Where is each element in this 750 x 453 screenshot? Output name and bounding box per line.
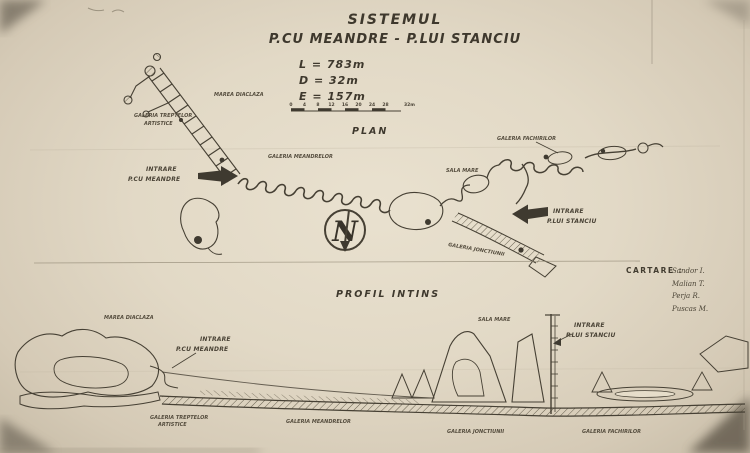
profile-label-galeria-treptelor: GALERIA TREPTELOR bbox=[150, 415, 208, 421]
plan-label-intrare-stanciu: INTRARE bbox=[553, 208, 584, 215]
scale-bar: 0 4 8 12 16 20 24 28 32m bbox=[289, 102, 415, 111]
cave-map-drawing: SISTEMUL P.CU MEANDRE - P.LUI STANCIU L … bbox=[0, 0, 750, 453]
scale-tick: 24 bbox=[369, 102, 375, 108]
plan-label-galeria-treptelor-2: ARTISTICE bbox=[143, 121, 173, 127]
plan-label-galeria-treptelor: GALERIA TREPTELOR bbox=[134, 113, 192, 119]
plan-label-intrare-meandre: INTRARE bbox=[146, 166, 177, 173]
scanned-cave-map-page: SISTEMUL P.CU MEANDRE - P.LUI STANCIU L … bbox=[0, 0, 750, 453]
scale-tick: 28 bbox=[382, 102, 388, 108]
profile-sala-mare-peaks bbox=[432, 332, 544, 402]
plan-room-sala-mare bbox=[461, 173, 490, 196]
plan-water-spot bbox=[425, 219, 431, 225]
plan-label-galeria-fachirilor: GALERIA FACHIRILOR bbox=[497, 136, 556, 142]
credits-name-2: Malian T. bbox=[671, 280, 705, 288]
scale-tick: 20 bbox=[355, 102, 361, 108]
plan-chamber-tail bbox=[208, 248, 222, 254]
plan-chamber-mid bbox=[389, 193, 443, 230]
map-title-line1: SISTEMUL bbox=[348, 12, 443, 28]
profile-label-intrare-stanciu-2: P.LUI STANCIU bbox=[566, 332, 616, 339]
scale-tick: 4 bbox=[303, 102, 306, 108]
title-block: SISTEMUL P.CU MEANDRE - P.LUI STANCIU L … bbox=[269, 12, 521, 103]
profile-heading: PROFIL INTINS bbox=[336, 289, 440, 300]
plan-passage-link bbox=[487, 165, 499, 178]
profile-label-galeria-meandrelor: GALERIA MEANDRELOR bbox=[286, 419, 351, 425]
profile-shaft-stanciu bbox=[545, 314, 572, 414]
credits-name-4: Puscas M. bbox=[671, 305, 708, 313]
plan-label-galeria-meandrelor: GALERIA MEANDRELOR bbox=[268, 154, 333, 160]
stat-depth: D = 32m bbox=[299, 74, 359, 87]
plan-passage-meandrelor bbox=[238, 179, 390, 213]
profile-label-intrare-meandre: INTRARE bbox=[200, 336, 231, 343]
plan-entrance-arrow-stanciu bbox=[512, 205, 548, 225]
plan-label-sala-mare: SALA MARE bbox=[446, 168, 479, 174]
map-title-line2: P.CU MEANDRE - P.LUI STANCIU bbox=[269, 32, 521, 47]
scale-tick: 12 bbox=[328, 102, 334, 108]
profile-label-sala-mare: SALA MARE bbox=[478, 317, 511, 323]
credits-name-3: Perja R. bbox=[671, 292, 700, 300]
scale-tick: 16 bbox=[342, 102, 348, 108]
profile-label-marea-diaclaza: MAREA DIACLAZA bbox=[104, 315, 154, 321]
profile-leader-meandre bbox=[172, 353, 196, 368]
scale-tick: 0 bbox=[289, 102, 292, 108]
stat-length: L = 783m bbox=[299, 58, 365, 71]
profile-label-intrare-stanciu: INTRARE bbox=[574, 322, 605, 329]
plan-label-intrare-meandre-2: P.CU MEANDRE bbox=[128, 176, 181, 183]
plan-heading: PLAN bbox=[352, 126, 388, 137]
scan-artifacts bbox=[0, 0, 750, 453]
stat-extension: E = 157m bbox=[299, 90, 366, 103]
credits-name-1: Sandor I. bbox=[672, 267, 705, 275]
profile-mass-marea-diaclaza bbox=[15, 329, 178, 408]
plan-water-spot bbox=[194, 236, 202, 244]
scale-tick: 8 bbox=[316, 102, 319, 108]
credits-block: CARTARE : Sandor I. Malian T. Perja R. P… bbox=[626, 266, 708, 313]
scale-end-label: 32m bbox=[404, 102, 415, 108]
profile-label-intrare-meandre-2: P.CU MEANDRE bbox=[176, 346, 229, 353]
plan-label-galeria-jonctiunii: GALERIA JONCTIUNII bbox=[448, 242, 505, 258]
plan-label-marea-diaclaza: MAREA DIACLAZA bbox=[214, 92, 264, 98]
profile-label-galeria-jonctiunii: GALERIA JONCTIUNII bbox=[447, 429, 504, 435]
north-arrow-icon: N bbox=[325, 210, 365, 252]
plan-passage-to-sala-mare bbox=[440, 185, 470, 206]
plan-view: PLAN bbox=[124, 54, 663, 278]
profile-mid-bumps bbox=[392, 370, 434, 398]
profile-label-galeria-fachirilor: GALERIA FACHIRILOR bbox=[582, 429, 641, 435]
profile-label-galeria-treptelor-2: ARTISTICE bbox=[157, 422, 187, 428]
plan-label-intrare-stanciu-2: P.LUI STANCIU bbox=[547, 218, 597, 225]
profile-view: PROFIL INTINS bbox=[15, 289, 748, 435]
